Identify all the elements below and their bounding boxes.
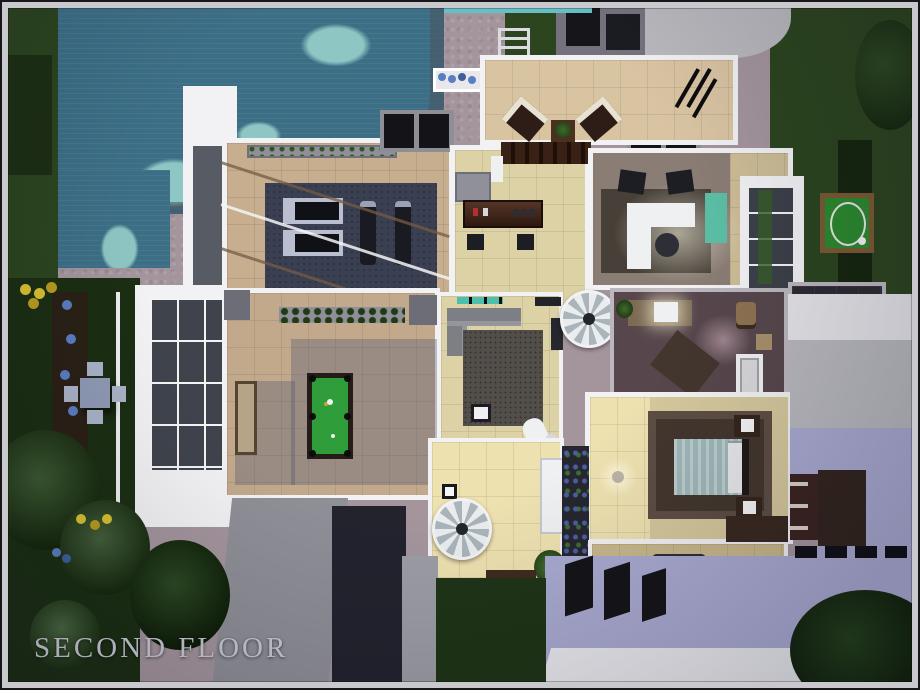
gym-room — [222, 138, 454, 310]
window-row-right — [795, 546, 913, 558]
sink — [654, 302, 678, 322]
teal-cabinet — [705, 193, 727, 243]
sectional-sofa — [447, 308, 521, 326]
roof-panel — [606, 14, 640, 50]
planter-flowers — [438, 73, 446, 81]
skylight — [604, 562, 630, 620]
exercise-bike — [395, 201, 411, 265]
outdoor-chair — [112, 386, 126, 402]
living-room — [437, 292, 563, 462]
navy-roof-bottom — [332, 506, 406, 690]
yellow-flowers — [76, 514, 86, 524]
wall-shelf — [455, 172, 491, 202]
balcony — [480, 55, 738, 145]
desk — [651, 203, 695, 227]
bathroom — [610, 288, 788, 398]
pool-table-felt — [312, 378, 348, 454]
pool-ladder — [498, 28, 530, 58]
west-glass-roof — [150, 298, 230, 470]
caption-title: SECOND FLOOR — [34, 632, 288, 665]
lawn-bottom — [436, 578, 546, 690]
treadmill-belt — [295, 202, 339, 220]
guest-chair — [666, 169, 695, 194]
stereo — [471, 404, 491, 422]
office-chair — [655, 233, 679, 257]
floorplan-screenshot: SECOND FLOOR — [0, 0, 920, 690]
blue-flowers — [62, 300, 72, 310]
pool-water-arm — [58, 170, 170, 268]
lounge-chair — [502, 96, 549, 142]
bookshelf-column — [562, 446, 589, 558]
pergola-beams — [501, 142, 591, 164]
hedge-planter — [279, 307, 405, 323]
pocket — [309, 375, 316, 382]
plant-leaves — [555, 122, 571, 138]
pool-table — [307, 373, 353, 459]
gym-planter — [247, 145, 397, 158]
white-wall-band-right — [788, 294, 920, 340]
bench — [235, 381, 257, 455]
lounge-chair — [576, 96, 623, 142]
outdoor-table — [80, 378, 110, 408]
bath-plant — [616, 300, 633, 318]
ceiling-lamp — [612, 471, 624, 483]
desk — [627, 203, 651, 269]
roof-vents — [380, 110, 454, 152]
media-shelf — [535, 297, 561, 306]
skylight — [642, 568, 666, 622]
yellow-flowers — [20, 284, 31, 295]
bar-stool — [467, 234, 484, 250]
table-lamp — [741, 419, 754, 432]
telescope — [686, 68, 711, 108]
hamper — [756, 334, 772, 350]
white-awning — [539, 648, 819, 690]
bed-pillows — [728, 441, 742, 493]
wall-art — [442, 484, 457, 499]
skylight — [565, 555, 593, 616]
closet-wardrobe — [726, 516, 788, 542]
table-lamp — [743, 501, 756, 514]
guest-chair — [618, 169, 647, 194]
blue-flowers — [52, 548, 61, 557]
wall-lamp — [491, 156, 503, 182]
concrete-pillar — [402, 556, 438, 690]
bar-bottles — [473, 208, 478, 216]
bar-room — [450, 145, 590, 310]
interior-hedge — [758, 190, 772, 284]
vent-panel — [419, 114, 449, 148]
pillar — [224, 290, 250, 320]
toilet — [736, 302, 756, 329]
spiral-staircase-lower — [432, 498, 492, 560]
tree-right-top — [855, 20, 920, 130]
vent-panel — [384, 114, 414, 148]
billiards-terrace — [222, 288, 440, 500]
outdoor-chair — [87, 410, 103, 424]
billiard-balls — [327, 399, 333, 405]
teal-shelf — [457, 297, 503, 304]
outdoor-chair — [87, 362, 103, 376]
tree-shadow — [8, 55, 52, 175]
golf-ball — [858, 237, 866, 245]
concrete-right — [790, 340, 920, 432]
headboard — [742, 439, 749, 495]
pillar — [409, 295, 439, 325]
bar-stool — [517, 234, 534, 250]
outdoor-chair — [64, 386, 78, 402]
putting-green — [820, 193, 874, 253]
